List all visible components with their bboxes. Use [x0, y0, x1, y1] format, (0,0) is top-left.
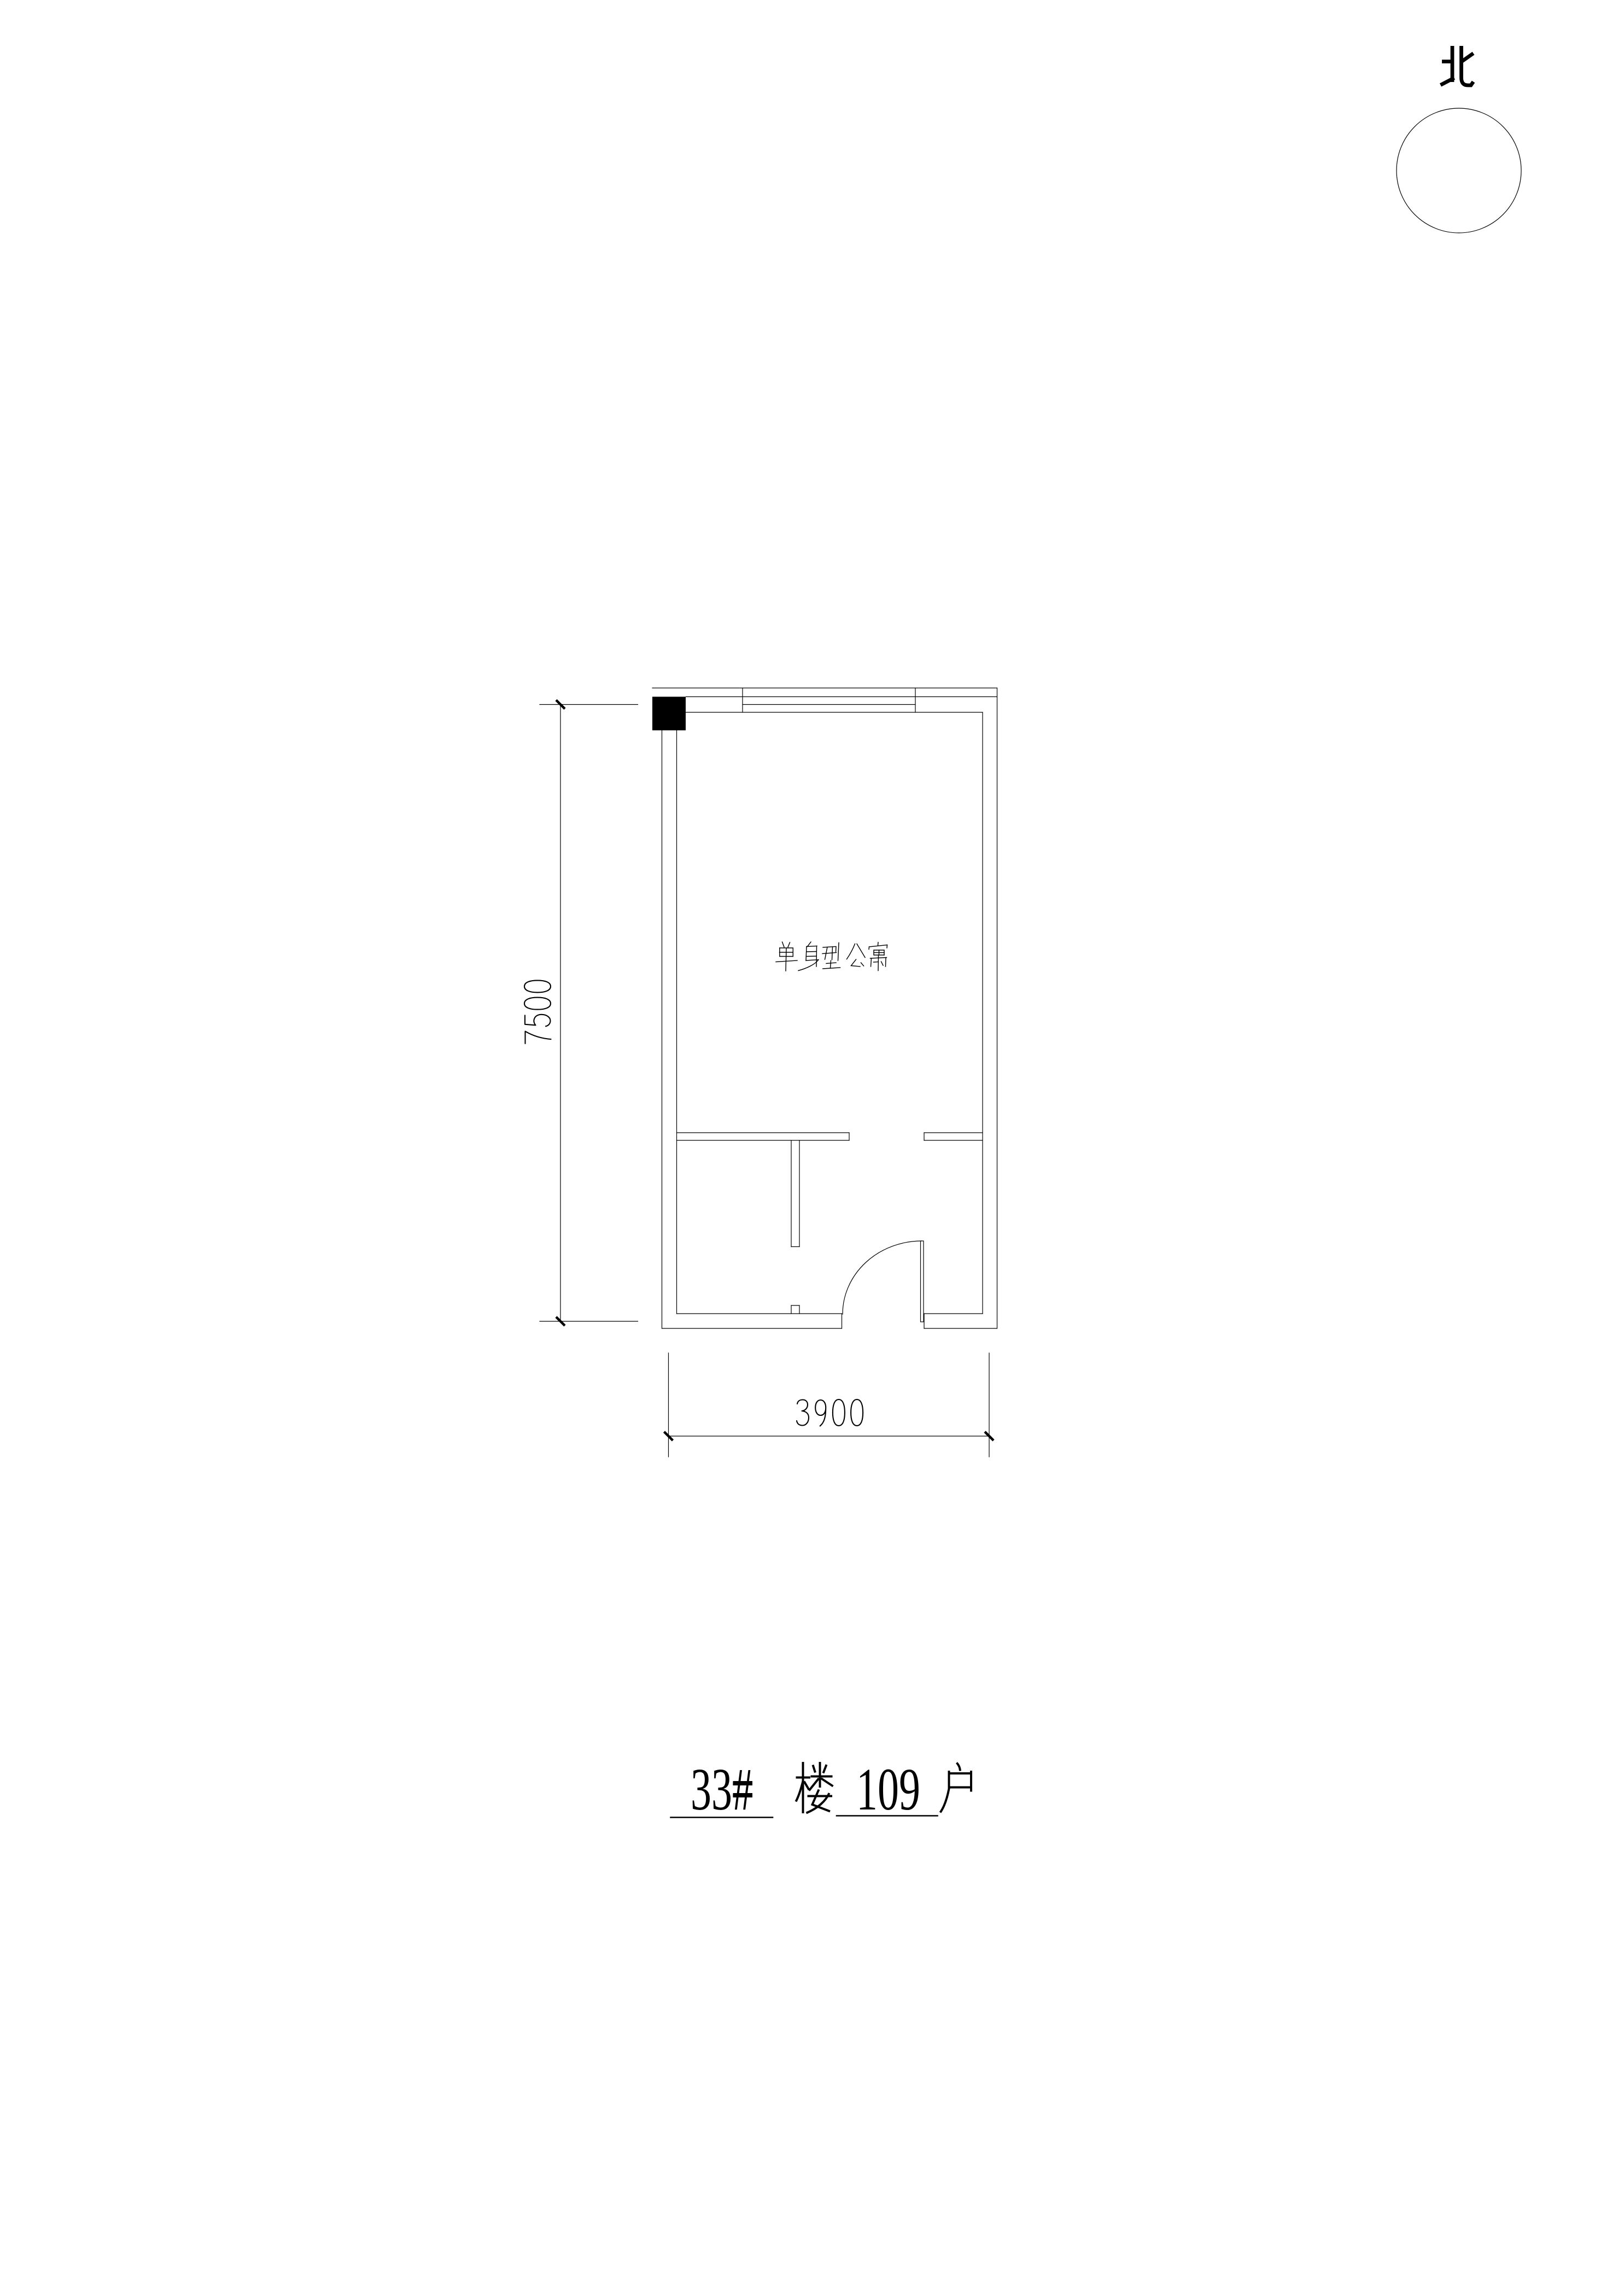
svg-text:109: 109 [856, 1756, 920, 1823]
svg-text:33#: 33# [691, 1756, 753, 1823]
